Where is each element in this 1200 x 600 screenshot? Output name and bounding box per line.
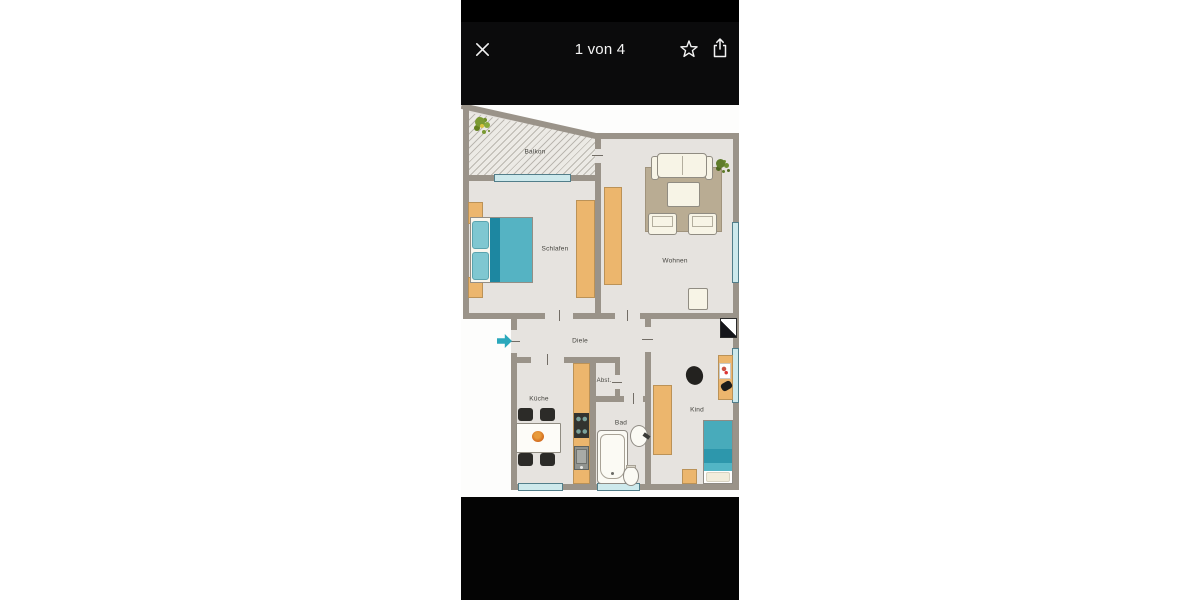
armchair-cushion xyxy=(692,216,713,227)
bathtub-drain xyxy=(611,472,614,475)
door-tick xyxy=(627,310,628,321)
bed-runner xyxy=(490,218,500,282)
wall-segment xyxy=(645,352,651,490)
dining-chair xyxy=(540,408,555,421)
floorplan-image[interactable]: Balkon Schlafen Wohnen Diele Abst. Küche… xyxy=(461,105,739,497)
toilet-tank xyxy=(626,465,636,468)
wall-segment xyxy=(733,133,739,490)
plant-icon xyxy=(716,159,725,168)
wall-segment xyxy=(463,313,545,319)
share-icon xyxy=(710,37,730,59)
wall-segment xyxy=(511,319,517,330)
wall-segment xyxy=(595,163,601,319)
wardrobe xyxy=(604,187,622,285)
armchair-cushion xyxy=(652,216,673,227)
north-marker-icon xyxy=(720,318,737,338)
wall-segment xyxy=(595,133,739,139)
nightstand xyxy=(682,469,697,484)
wall-segment xyxy=(595,133,601,149)
door-tick xyxy=(547,354,548,365)
balcony-hatched-area xyxy=(467,107,595,175)
bed-band xyxy=(704,449,732,463)
star-icon xyxy=(679,39,699,59)
wall-segment xyxy=(511,353,517,490)
favorite-button[interactable] xyxy=(679,39,699,59)
sink-basin xyxy=(576,449,587,464)
bed-pillow xyxy=(706,472,730,482)
wall-segment xyxy=(615,357,620,375)
desk-paper xyxy=(719,363,731,379)
room-label-abst: Abst. xyxy=(597,378,612,384)
wall-segment xyxy=(573,313,615,319)
window xyxy=(494,174,571,182)
wall-segment xyxy=(615,389,620,396)
dining-chair xyxy=(518,453,533,466)
room-label-balkon: Balkon xyxy=(524,149,545,156)
bed-pillow xyxy=(472,221,489,249)
door-tick xyxy=(559,310,560,321)
wall-segment xyxy=(590,357,596,490)
room-label-kind: Kind xyxy=(690,407,704,414)
door-tick xyxy=(592,155,603,156)
sink-faucet xyxy=(580,466,583,469)
window xyxy=(732,348,739,403)
wall-segment xyxy=(645,319,651,327)
window xyxy=(518,483,563,491)
viewer-footer xyxy=(461,497,739,600)
share-button[interactable] xyxy=(710,37,730,59)
bed-band xyxy=(704,463,732,471)
side-table xyxy=(688,288,708,310)
plant-flower-icon xyxy=(480,124,484,128)
bed-blanket xyxy=(704,421,732,449)
entrance-arrow-icon xyxy=(497,333,512,349)
room-label-wohnen: Wohnen xyxy=(662,258,687,265)
room-label-bad: Bad xyxy=(615,420,627,427)
dining-chair xyxy=(518,408,533,421)
bed-pillow xyxy=(472,252,489,280)
page-background: { "viewer": { "counter": "1 von 4", "ico… xyxy=(0,0,1200,600)
viewer-header: 1 von 4 xyxy=(461,0,739,105)
door-tick xyxy=(633,393,634,404)
room-label-schlafen: Schlafen xyxy=(542,246,569,253)
toilet xyxy=(623,466,639,486)
room-label-diele: Diele xyxy=(572,338,588,345)
stove xyxy=(574,413,589,438)
food-plate xyxy=(532,431,544,442)
sofa-cushion-split xyxy=(682,156,683,175)
bed-blanket xyxy=(500,218,532,282)
wardrobe xyxy=(576,200,595,298)
window xyxy=(732,222,739,283)
room-label-kueche: Küche xyxy=(529,396,548,403)
wardrobe xyxy=(653,385,672,455)
coffee-table xyxy=(667,182,700,207)
image-viewer: 1 von 4 xyxy=(461,0,739,600)
door-tick xyxy=(642,339,653,340)
door-tick xyxy=(612,382,622,383)
dining-chair xyxy=(540,453,555,466)
